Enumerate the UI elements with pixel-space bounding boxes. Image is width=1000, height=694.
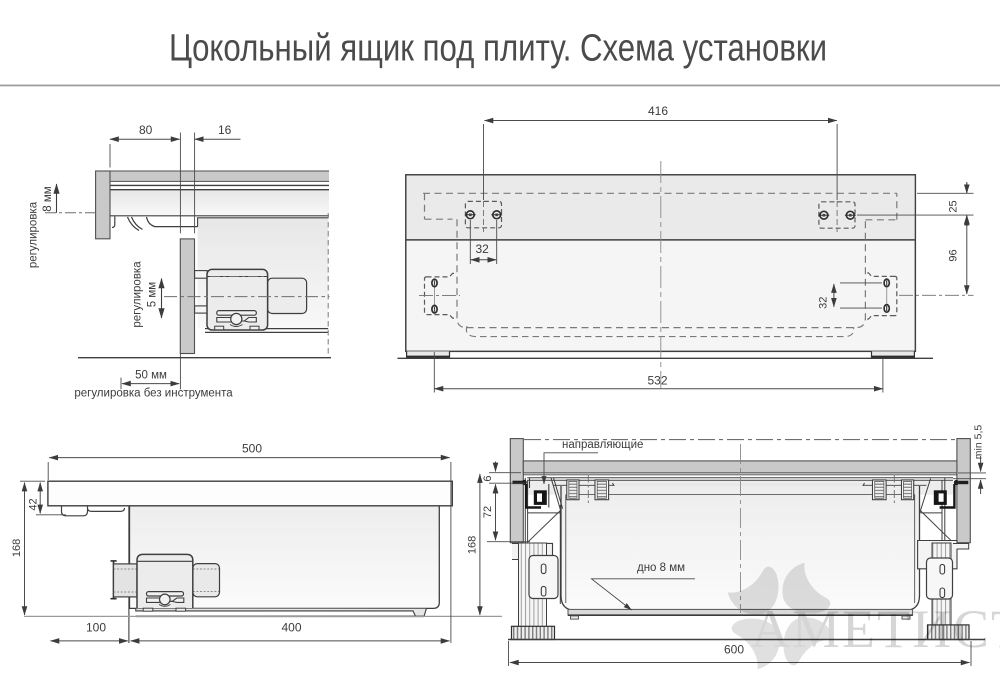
svg-text:8 мм: 8 мм xyxy=(42,186,54,211)
svg-text:регулировка: регулировка xyxy=(28,201,40,268)
svg-text:6: 6 xyxy=(482,475,494,481)
svg-text:168: 168 xyxy=(11,539,23,557)
svg-text:96: 96 xyxy=(948,249,960,261)
svg-text:Цокольный ящик под плиту. Схем: Цокольный ящик под плиту. Схема установк… xyxy=(169,28,827,70)
svg-text:дно 8 мм: дно 8 мм xyxy=(637,562,685,574)
svg-text:416: 416 xyxy=(648,104,668,118)
svg-text:АМЕТИСТ: АМЕТИСТ xyxy=(751,599,1000,659)
svg-text:регулировка: регулировка xyxy=(132,261,144,328)
svg-text:100: 100 xyxy=(86,621,106,635)
svg-text:min 5,5: min 5,5 xyxy=(973,425,985,460)
svg-text:5 мм: 5 мм xyxy=(147,282,159,307)
svg-text:600: 600 xyxy=(724,643,744,657)
svg-text:32: 32 xyxy=(476,242,490,256)
svg-text:72: 72 xyxy=(482,506,494,518)
svg-text:направляющие: направляющие xyxy=(562,439,643,451)
svg-text:168: 168 xyxy=(467,536,479,554)
svg-text:80: 80 xyxy=(139,123,153,137)
svg-text:400: 400 xyxy=(282,621,302,635)
svg-text:16: 16 xyxy=(218,123,232,137)
svg-text:регулировка без инструмента: регулировка без инструмента xyxy=(74,388,233,400)
svg-text:50 мм: 50 мм xyxy=(135,370,167,382)
svg-text:25: 25 xyxy=(948,200,960,212)
svg-text:42: 42 xyxy=(28,498,40,510)
svg-text:500: 500 xyxy=(242,442,262,456)
svg-text:32: 32 xyxy=(818,297,830,309)
svg-text:532: 532 xyxy=(648,374,668,388)
